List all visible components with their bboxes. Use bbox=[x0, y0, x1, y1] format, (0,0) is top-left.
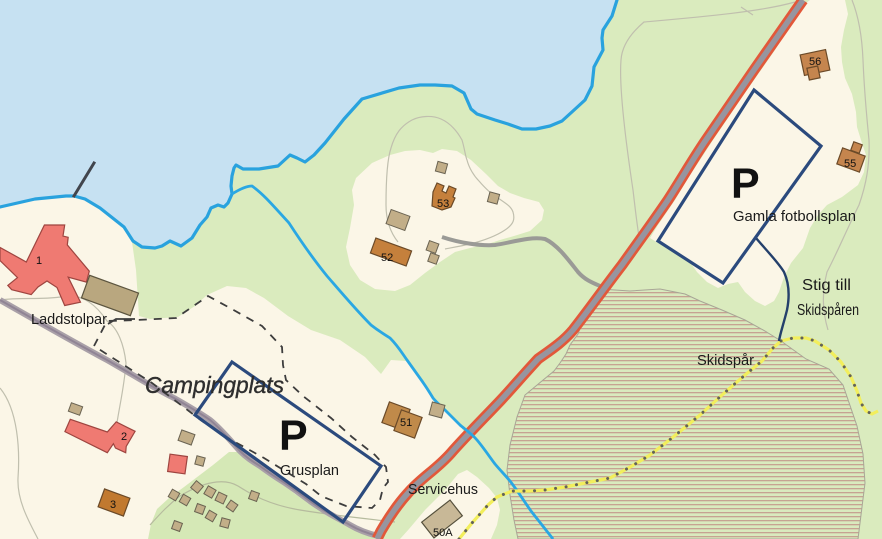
svg-text:P: P bbox=[279, 412, 308, 460]
svg-text:Gamla fotbollsplan: Gamla fotbollsplan bbox=[733, 208, 856, 225]
svg-text:56: 56 bbox=[809, 56, 821, 68]
svg-text:55: 55 bbox=[844, 158, 856, 170]
svg-text:3: 3 bbox=[110, 499, 116, 511]
svg-text:Servicehus: Servicehus bbox=[408, 481, 478, 498]
svg-text:51: 51 bbox=[400, 417, 412, 429]
svg-text:Grusplan: Grusplan bbox=[280, 462, 339, 479]
svg-text:2: 2 bbox=[121, 431, 127, 443]
svg-text:1: 1 bbox=[36, 255, 42, 267]
svg-text:Skidspår: Skidspår bbox=[697, 352, 754, 369]
svg-text:Laddstolpar: Laddstolpar bbox=[31, 311, 107, 328]
svg-text:P: P bbox=[731, 160, 760, 208]
svg-text:50A: 50A bbox=[433, 527, 453, 539]
svg-text:52: 52 bbox=[381, 252, 393, 264]
svg-text:Skidspåren: Skidspåren bbox=[797, 302, 859, 319]
svg-text:Stig till: Stig till bbox=[802, 277, 851, 294]
svg-text:Campingplats: Campingplats bbox=[145, 372, 284, 398]
svg-text:53: 53 bbox=[437, 198, 449, 210]
